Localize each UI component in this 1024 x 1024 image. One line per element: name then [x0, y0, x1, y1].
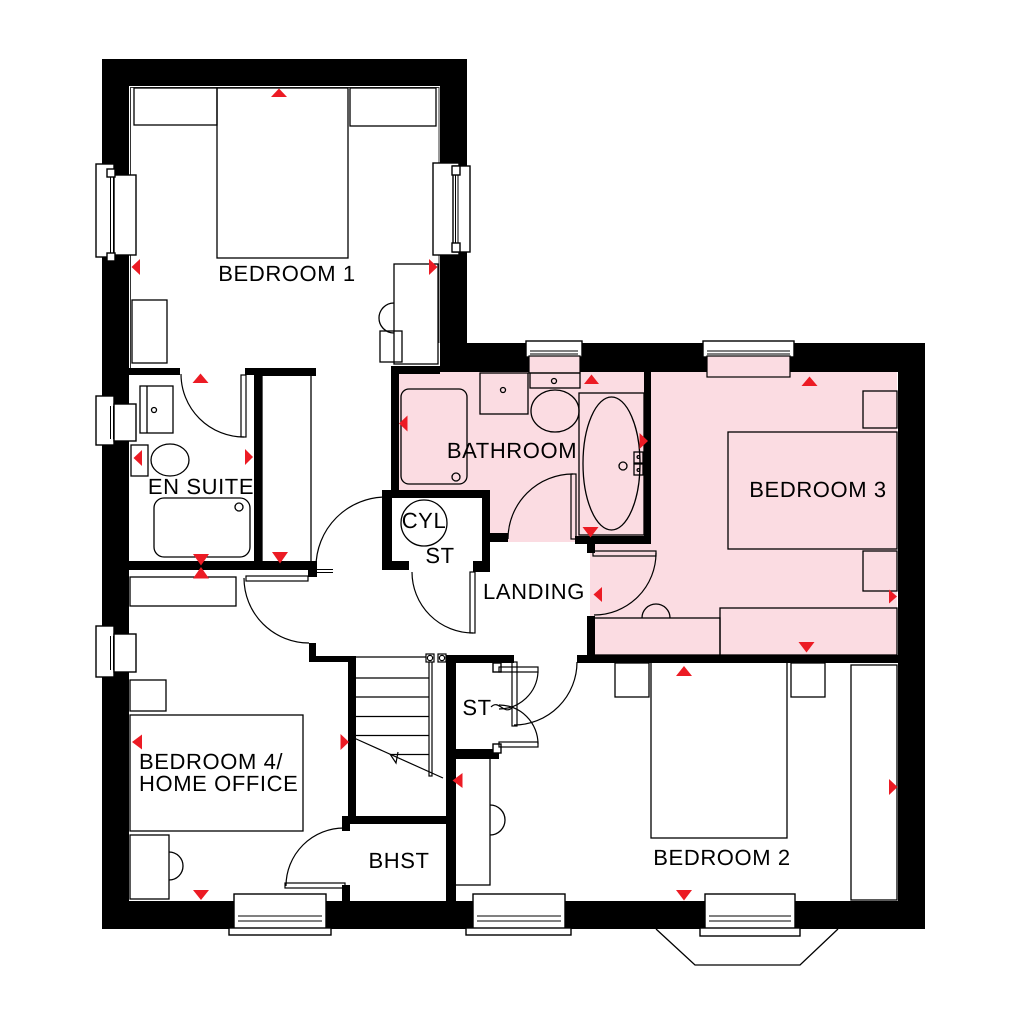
svg-text:BHST: BHST: [368, 848, 429, 873]
svg-text:ST: ST: [425, 543, 454, 568]
svg-text:EN SUITE: EN SUITE: [148, 474, 254, 499]
svg-text:CYL: CYL: [402, 508, 447, 533]
svg-text:BATHROOM: BATHROOM: [447, 438, 577, 463]
svg-text:BEDROOM 1: BEDROOM 1: [218, 261, 355, 286]
svg-text:HOME OFFICE: HOME OFFICE: [139, 771, 298, 796]
svg-text:BEDROOM 2: BEDROOM 2: [653, 845, 790, 870]
svg-text:BEDROOM 3: BEDROOM 3: [749, 477, 886, 502]
svg-text:ST: ST: [462, 695, 491, 720]
svg-text:LANDING: LANDING: [483, 579, 585, 604]
